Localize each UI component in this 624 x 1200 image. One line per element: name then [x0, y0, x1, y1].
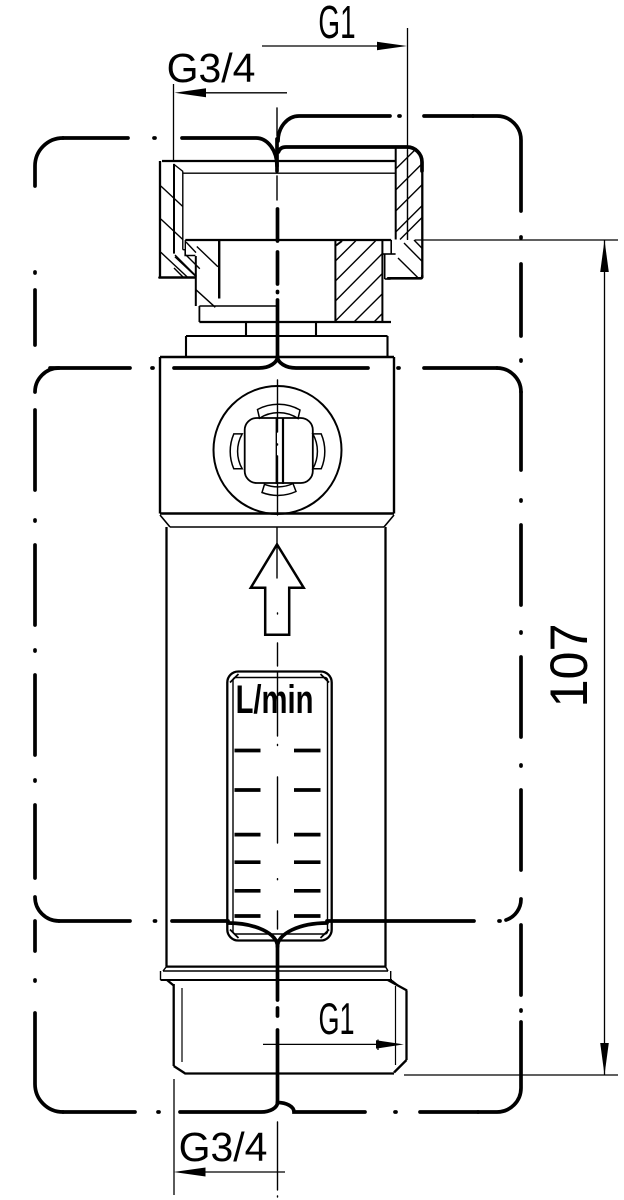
svg-text:G1: G1: [318, 0, 355, 49]
svg-text:G3/4: G3/4: [179, 1124, 268, 1170]
svg-text:G1: G1: [318, 994, 354, 1044]
svg-text:G3/4: G3/4: [167, 45, 256, 91]
svg-text:107: 107: [539, 623, 598, 707]
svg-text:L/min: L/min: [236, 678, 314, 723]
